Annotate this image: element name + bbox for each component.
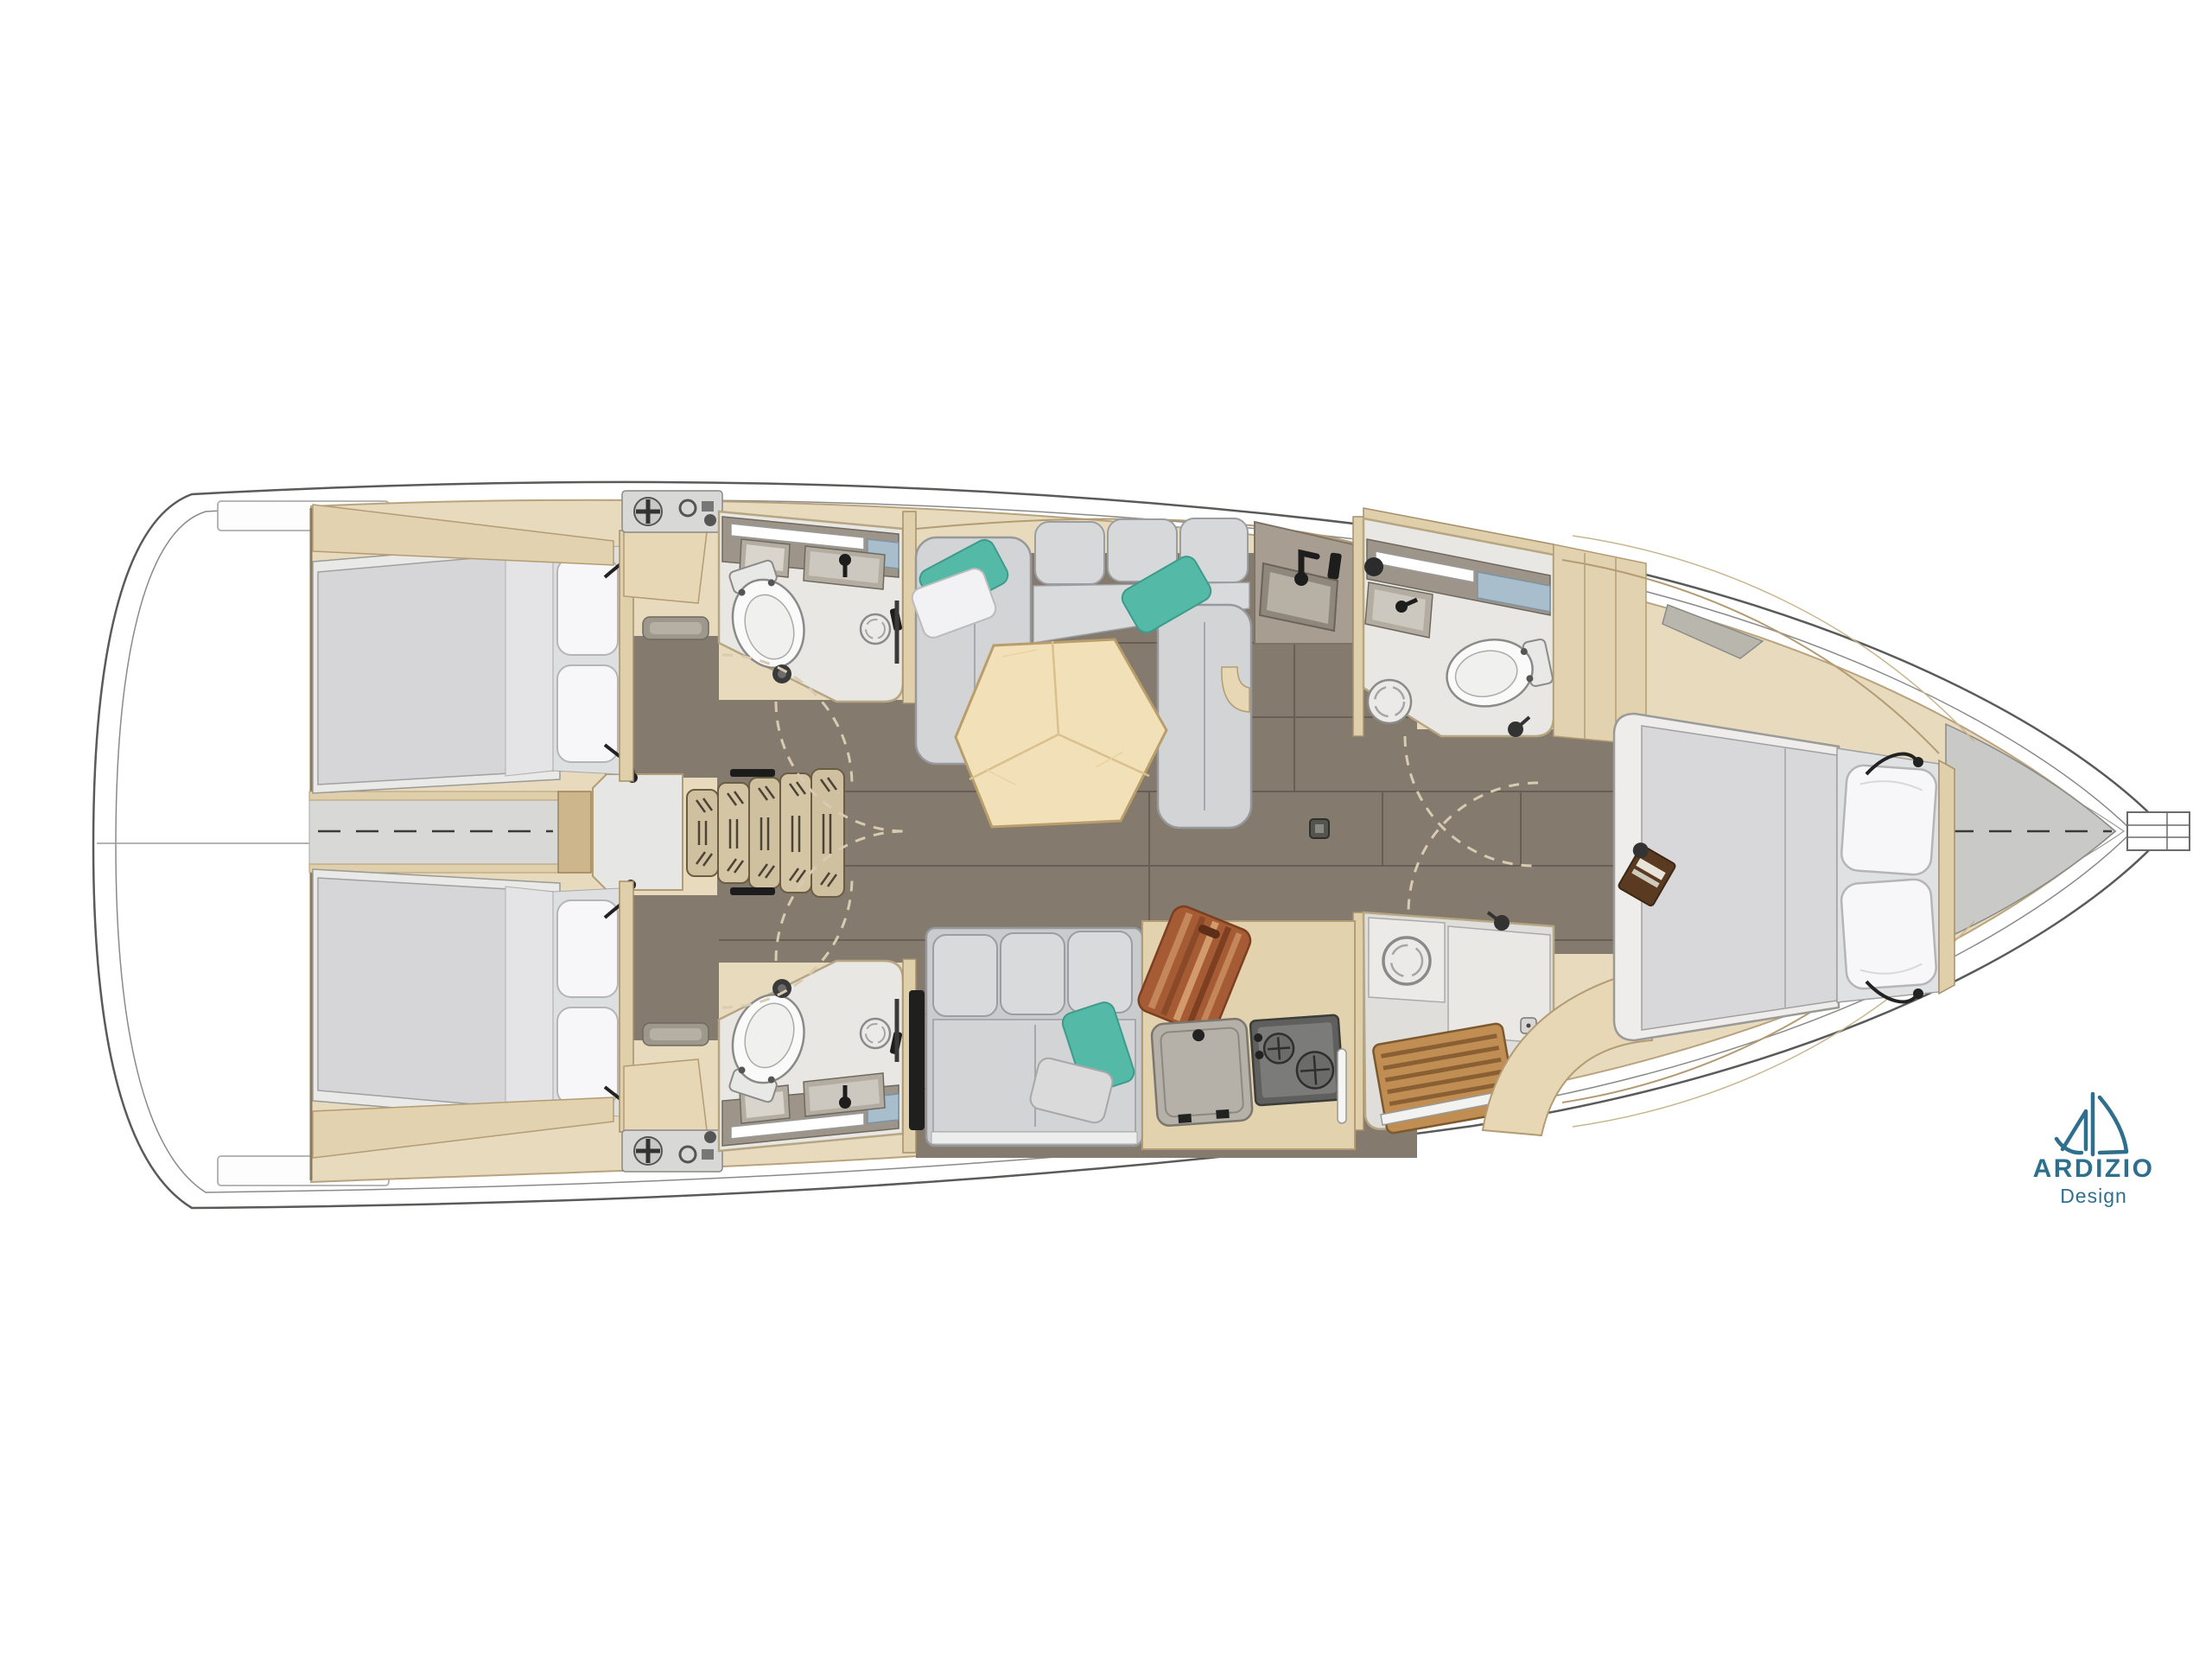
stove — [1250, 1014, 1344, 1105]
pillow — [1840, 879, 1937, 990]
brand-logo: ARDIZIO Design — [2033, 1094, 2155, 1207]
mattress-edge-strip — [505, 551, 553, 776]
galley-port-counter — [1255, 522, 1353, 644]
crash-bar — [1338, 1049, 1346, 1123]
mattress-edge-strip — [505, 887, 553, 1111]
steering-gear-starboard — [622, 1130, 722, 1172]
mattress — [1642, 726, 1837, 1030]
brand-title: ARDIZIO — [2033, 1154, 2155, 1183]
galley-starboard — [1135, 903, 1355, 1149]
stair-bracket — [730, 887, 775, 895]
wall-knob — [1364, 557, 1383, 576]
settee-front-trim — [931, 1132, 1137, 1144]
head-forward — [1363, 508, 1555, 737]
companionway-landing — [593, 774, 683, 890]
settee-cushion — [1001, 933, 1065, 1014]
pillow — [1840, 765, 1937, 876]
floor-plan-canvas: ARDIZIO Design — [0, 0, 2212, 1659]
bulkhead-band — [903, 512, 916, 703]
mast-post-block — [558, 791, 591, 873]
settee-cushion — [1068, 931, 1132, 1013]
stair-bracket — [730, 769, 775, 777]
sailboat-logo-icon — [2056, 1094, 2126, 1154]
sofa-back-cushion — [1035, 522, 1104, 584]
settee-cushion — [933, 935, 997, 1016]
steering-gear-port — [622, 491, 722, 532]
tv-panel — [909, 990, 925, 1130]
mast-step — [1310, 819, 1329, 838]
headboard-panel — [1939, 760, 1955, 994]
bulkhead-band — [1353, 517, 1363, 736]
galley-sink-lid — [1151, 1018, 1253, 1126]
brand-subtitle: Design — [2060, 1185, 2127, 1207]
shower-wall-panel — [1369, 918, 1445, 1002]
settee-starboard — [909, 928, 1142, 1146]
bow-anchor-fitting — [2127, 812, 2190, 850]
